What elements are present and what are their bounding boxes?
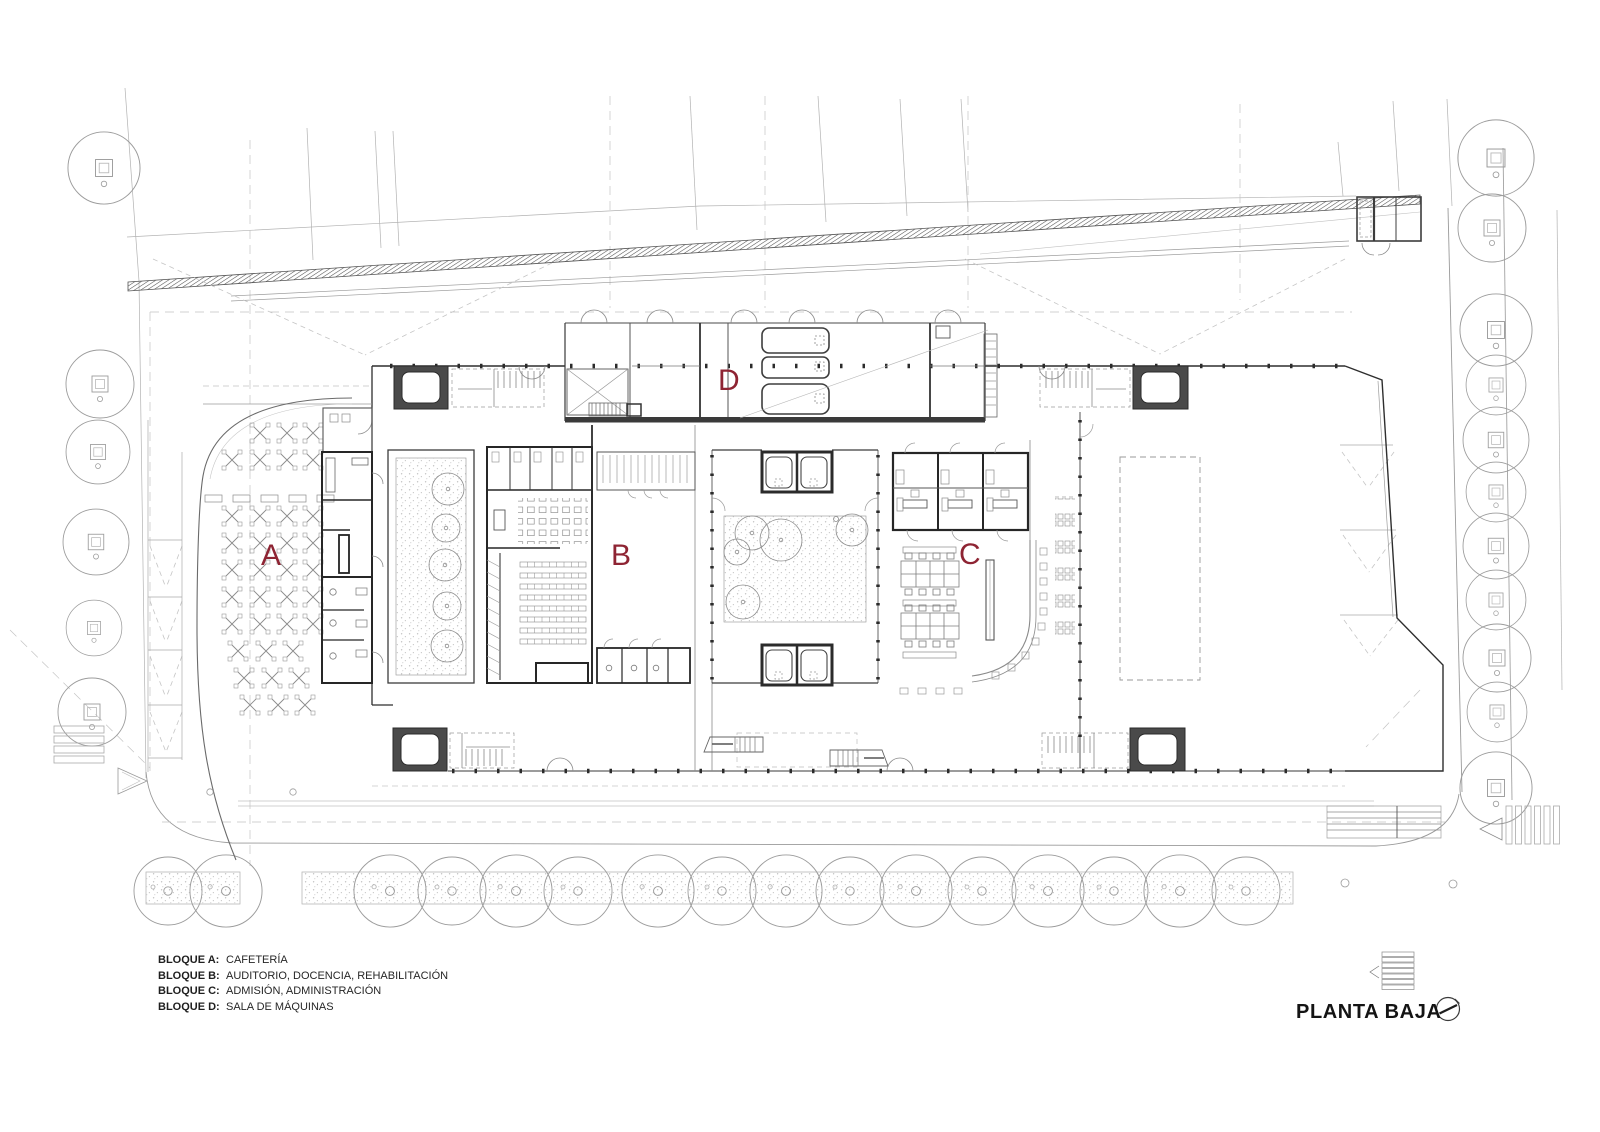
kitchen-block	[322, 408, 383, 683]
legend-row-block-a: BLOQUE A: CAFETERÍA	[158, 953, 448, 969]
exterior-stair-west	[704, 737, 763, 752]
legend-description: SALA DE MÁQUINAS	[226, 1000, 334, 1016]
legend-row-block-c: BLOQUE C: ADMISIÓN, ADMINISTRACIÓN	[158, 984, 448, 1000]
block-c-letter: C	[959, 540, 981, 570]
block-a-cafeteria	[197, 398, 352, 860]
legend-label: BLOQUE A:	[158, 953, 226, 969]
block-d-letter: D	[718, 366, 740, 396]
legend-row-block-b: BLOQUE B: AUDITORIO, DOCENCIA, REHABILIT…	[158, 969, 448, 985]
block-b-foyer	[592, 425, 712, 771]
patio-garden	[388, 450, 474, 683]
access-ramp	[128, 195, 1420, 301]
office-desks	[897, 490, 1017, 511]
legend-description: ADMISIÓN, ADMINISTRACIÓN	[226, 984, 381, 1000]
legend-label: BLOQUE C:	[158, 984, 226, 1000]
legend-row-block-d: BLOQUE D: SALA DE MÁQUINAS	[158, 1000, 448, 1016]
esplanade-features	[54, 726, 1560, 990]
elevators-north	[762, 452, 832, 492]
core-top-left	[394, 366, 544, 409]
crosswalk-east	[1506, 806, 1560, 844]
page-title: PLANTA BAJA	[1296, 1001, 1442, 1024]
core-bottom-right	[1042, 728, 1185, 771]
block-a-letter: A	[261, 541, 281, 571]
core-bottom-left	[393, 728, 514, 771]
exterior-stair-east	[830, 750, 888, 766]
crosswalk-west	[54, 726, 104, 763]
legend: BLOQUE A: CAFETERÍA BLOQUE B: AUDITORIO,…	[158, 953, 448, 1016]
block-d-machine-room	[565, 310, 997, 423]
block-b-auditorium	[487, 447, 592, 683]
legend-description: AUDITORIO, DOCENCIA, REHABILITACIÓN	[226, 969, 448, 985]
legend-description: CAFETERÍA	[226, 953, 288, 969]
legend-label: BLOQUE D:	[158, 1000, 226, 1016]
legend-label: BLOQUE B:	[158, 969, 226, 985]
central-courtyard	[712, 450, 878, 685]
right-hall	[1055, 412, 1200, 768]
stair-bottom-right	[1370, 952, 1414, 990]
floor-plan-sheet: A B C D BLOQUE A: CAFETERÍA BLOQUE B: AU…	[0, 0, 1600, 1132]
block-b-letter: B	[611, 541, 631, 571]
elevators-south	[762, 645, 832, 685]
core-top-right	[1040, 366, 1188, 409]
